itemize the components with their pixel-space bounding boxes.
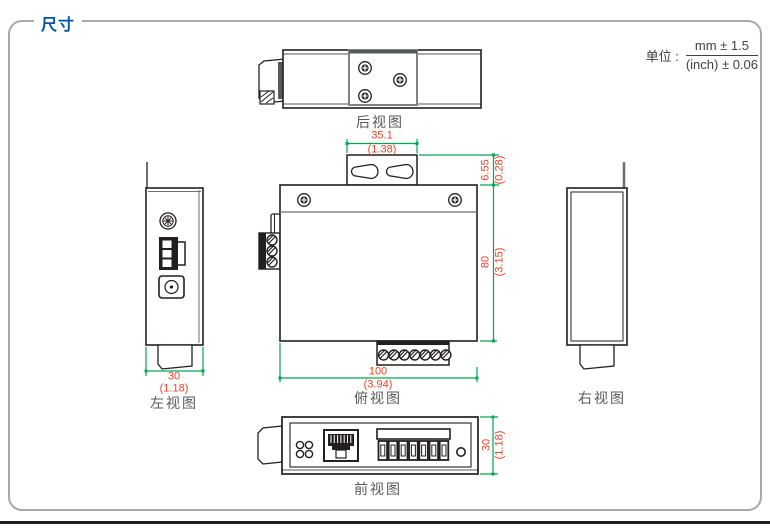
terminal-connector xyxy=(377,429,450,460)
dim-mount-tab-depth-mm: 6.55 xyxy=(481,159,492,180)
screw-icon xyxy=(449,194,462,207)
screw-icon xyxy=(359,90,372,103)
dim-body-depth-mm: 80 xyxy=(481,256,492,268)
right-view-drawing xyxy=(567,162,627,369)
front-view-label: 前视图 xyxy=(354,482,402,496)
left-view-drawing xyxy=(146,162,203,369)
dimension-drawing-page: 尺寸 单位 : mm ± 1.5 (inch) ± 0.06 xyxy=(0,0,770,532)
screw-icon xyxy=(298,194,311,207)
rj45-port xyxy=(324,430,358,461)
screw-icon xyxy=(394,74,407,87)
side-terminal-block xyxy=(259,233,280,269)
left-view-label: 左视图 xyxy=(150,396,198,410)
technical-drawing xyxy=(0,0,770,532)
dim-mount-tab-depth-inch: (0.28) xyxy=(495,156,506,185)
dim-body-width-inch: (3.94) xyxy=(364,380,393,391)
ground-screw xyxy=(160,213,176,229)
dim-body-width-mm: 100 xyxy=(369,367,387,378)
din-rail-clip xyxy=(258,426,282,464)
front-view-drawing xyxy=(258,417,478,474)
din-rail-clip xyxy=(580,345,614,369)
mount-keyhole xyxy=(352,165,379,179)
screw-icon xyxy=(359,62,372,75)
top-view-label: 俯视图 xyxy=(354,391,402,405)
dim-side-width-mm: 30 xyxy=(168,372,180,383)
dim-body-depth-inch: (3.15) xyxy=(495,248,506,277)
dim-mount-tab-width-mm: 35.1 xyxy=(371,131,392,142)
right-view-label: 右视图 xyxy=(578,391,626,405)
dim-side-width-inch: (1.18) xyxy=(160,384,189,395)
mount-hole xyxy=(457,448,465,456)
rear-view-drawing xyxy=(259,50,481,108)
mount-tab xyxy=(347,155,417,185)
top-view-drawing xyxy=(259,155,477,365)
dim-mount-tab-width-inch: (1.38) xyxy=(368,145,397,156)
din-rail-clip xyxy=(158,345,192,369)
dim-front-height-mm: 30 xyxy=(482,439,493,451)
bottom-divider xyxy=(0,521,770,524)
mount-keyhole xyxy=(387,165,414,179)
bottom-terminal-block xyxy=(377,341,451,365)
dc-power-jack xyxy=(159,276,184,298)
dim-front-height-inch: (1.18) xyxy=(495,431,506,460)
din-rail-clip xyxy=(259,59,285,104)
rear-view-label: 后视图 xyxy=(356,115,404,129)
